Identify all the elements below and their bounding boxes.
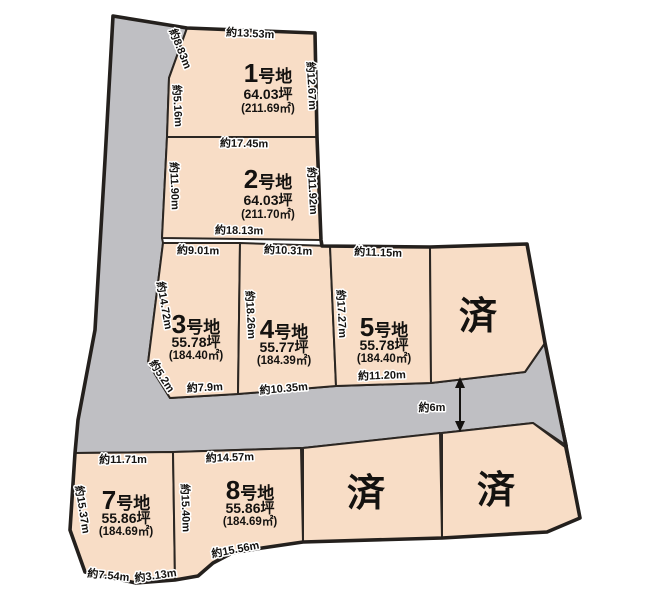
lot-8-tsubo: 55.86坪 [225,500,274,516]
dim-lot1-top: 約13.53m [226,25,275,42]
lot-5-sqm: (184.40㎡) [357,351,412,365]
dim-lot2-bottom: 約18.13m [215,223,264,238]
site-plan-svg: 約6m 1号地 64.03坪 (211.69㎡) 2号地 64.03坪 (211… [0,0,647,600]
sold-label-bottom-left: 済 [347,473,386,515]
dim-road-width: 約6m [419,400,446,414]
sold-label-middle: 済 [459,296,498,338]
dim-lot7-top: 約11.71m [99,452,147,466]
lot-2-suffix: 号地 [258,172,292,192]
lot-3-sqm: (184.40㎡) [169,348,224,362]
lot-2-number: 2 [244,164,258,194]
lot-1-tsubo: 64.03坪 [243,86,292,102]
lot-2-tsubo: 64.03坪 [243,192,292,208]
lot-4-sqm: (184.39㎡) [257,353,312,367]
lot-7-tsubo: 55.86坪 [101,510,150,526]
lot-4-tsubo: 55.77坪 [259,339,308,355]
dim-lot3-top: 約9.01m [177,243,220,258]
lot-2-sqm: (211.70㎡) [241,207,295,221]
lot-5-tsubo: 55.78坪 [359,337,408,353]
lot-1-suffix: 号地 [258,66,292,86]
lot-3-tsubo: 55.78坪 [171,334,220,350]
lot-1-area [167,28,317,137]
lot-1-number: 1 [244,58,258,88]
lot-8-sqm: (184.69㎡) [223,514,278,528]
lot-1-sqm: (211.69㎡) [241,101,295,115]
dim-lot1-right: 約12.67m [304,61,321,110]
sold-label-bottom-right: 済 [477,470,516,512]
lot-7-sqm: (184.69㎡) [99,524,154,538]
dim-lot2-top: 約17.45m [220,136,269,151]
lot-plan-map: 約6m 1号地 64.03坪 (211.69㎡) 2号地 64.03坪 (211… [0,0,647,600]
